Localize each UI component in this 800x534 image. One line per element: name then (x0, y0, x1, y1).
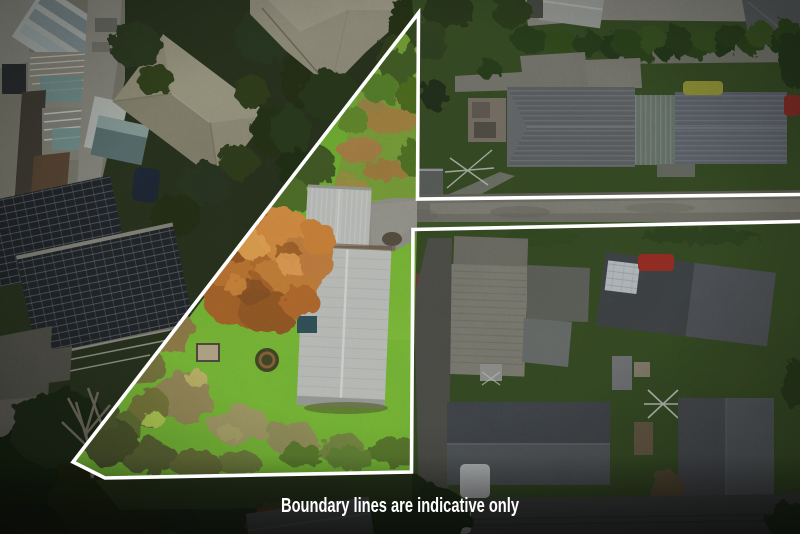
svg-text:Boundary lines are indicative: Boundary lines are indicative only (281, 495, 520, 517)
